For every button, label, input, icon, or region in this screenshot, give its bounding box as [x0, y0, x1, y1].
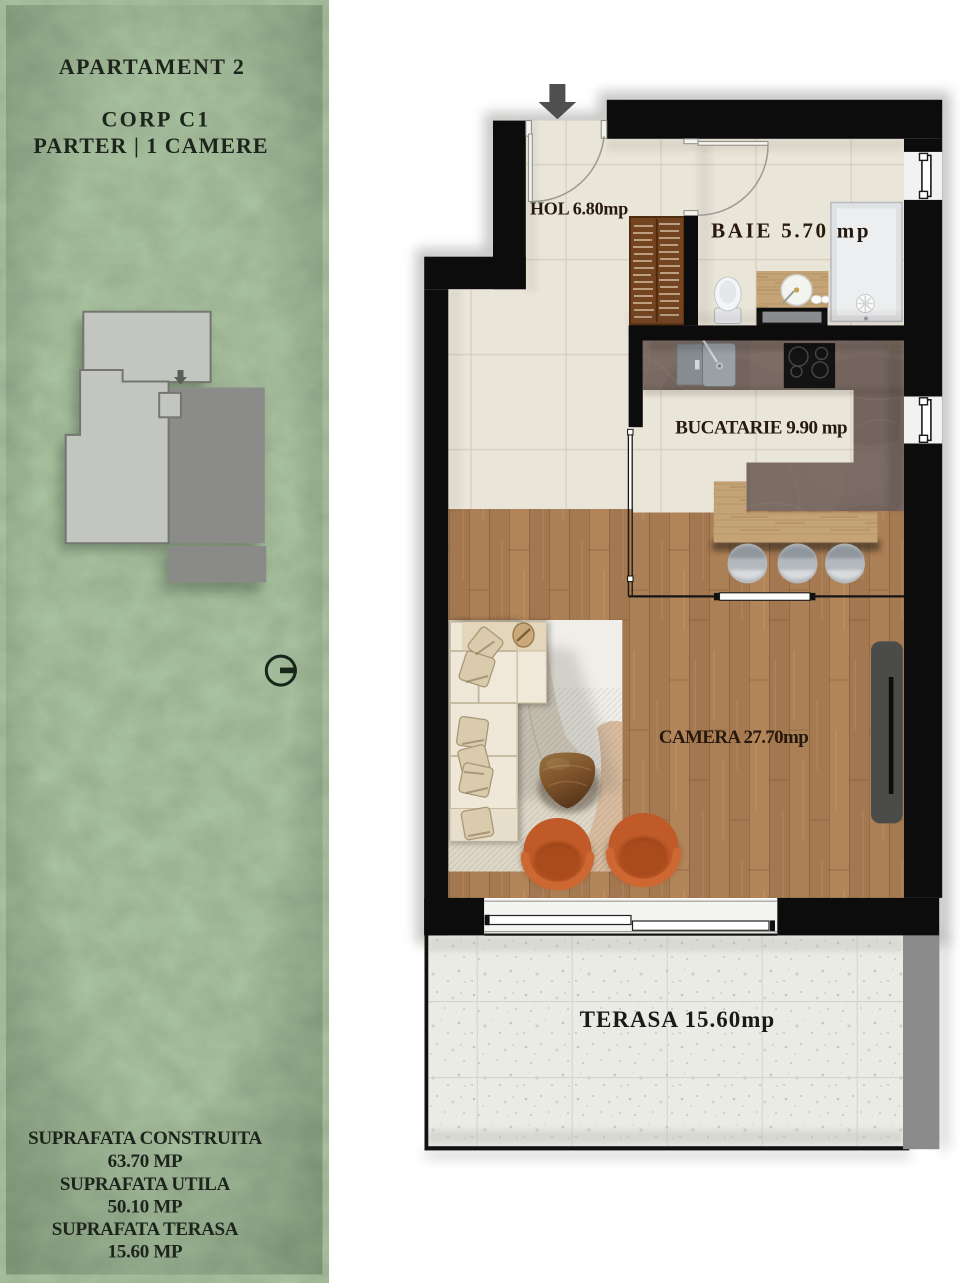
svg-text:50.10 MP: 50.10 MP [108, 1197, 183, 1218]
svg-text:63.70 MP: 63.70 MP [108, 1151, 183, 1172]
svg-text:TERASA 15.60mp: TERASA 15.60mp [580, 1007, 775, 1032]
svg-text:CORP C1: CORP C1 [102, 107, 211, 132]
svg-text:15.60 MP: 15.60 MP [108, 1242, 183, 1263]
svg-text:BAIE 5.70 mp: BAIE 5.70 mp [711, 219, 871, 243]
svg-text:SUPRAFATA TERASA: SUPRAFATA TERASA [52, 1219, 239, 1240]
svg-text:CAMERA 27.70mp: CAMERA 27.70mp [659, 727, 808, 748]
svg-text:PARTER | 1 CAMERE: PARTER | 1 CAMERE [33, 133, 268, 158]
svg-text:SUPRAFATA CONSTRUITA: SUPRAFATA CONSTRUITA [28, 1128, 262, 1149]
svg-text:BUCATARIE 9.90 mp: BUCATARIE 9.90 mp [675, 418, 847, 439]
svg-text:APARTAMENT 2: APARTAMENT 2 [59, 54, 246, 79]
svg-text:SUPRAFATA UTILA: SUPRAFATA UTILA [60, 1174, 231, 1195]
svg-text:HOL 6.80mp: HOL 6.80mp [530, 198, 628, 218]
